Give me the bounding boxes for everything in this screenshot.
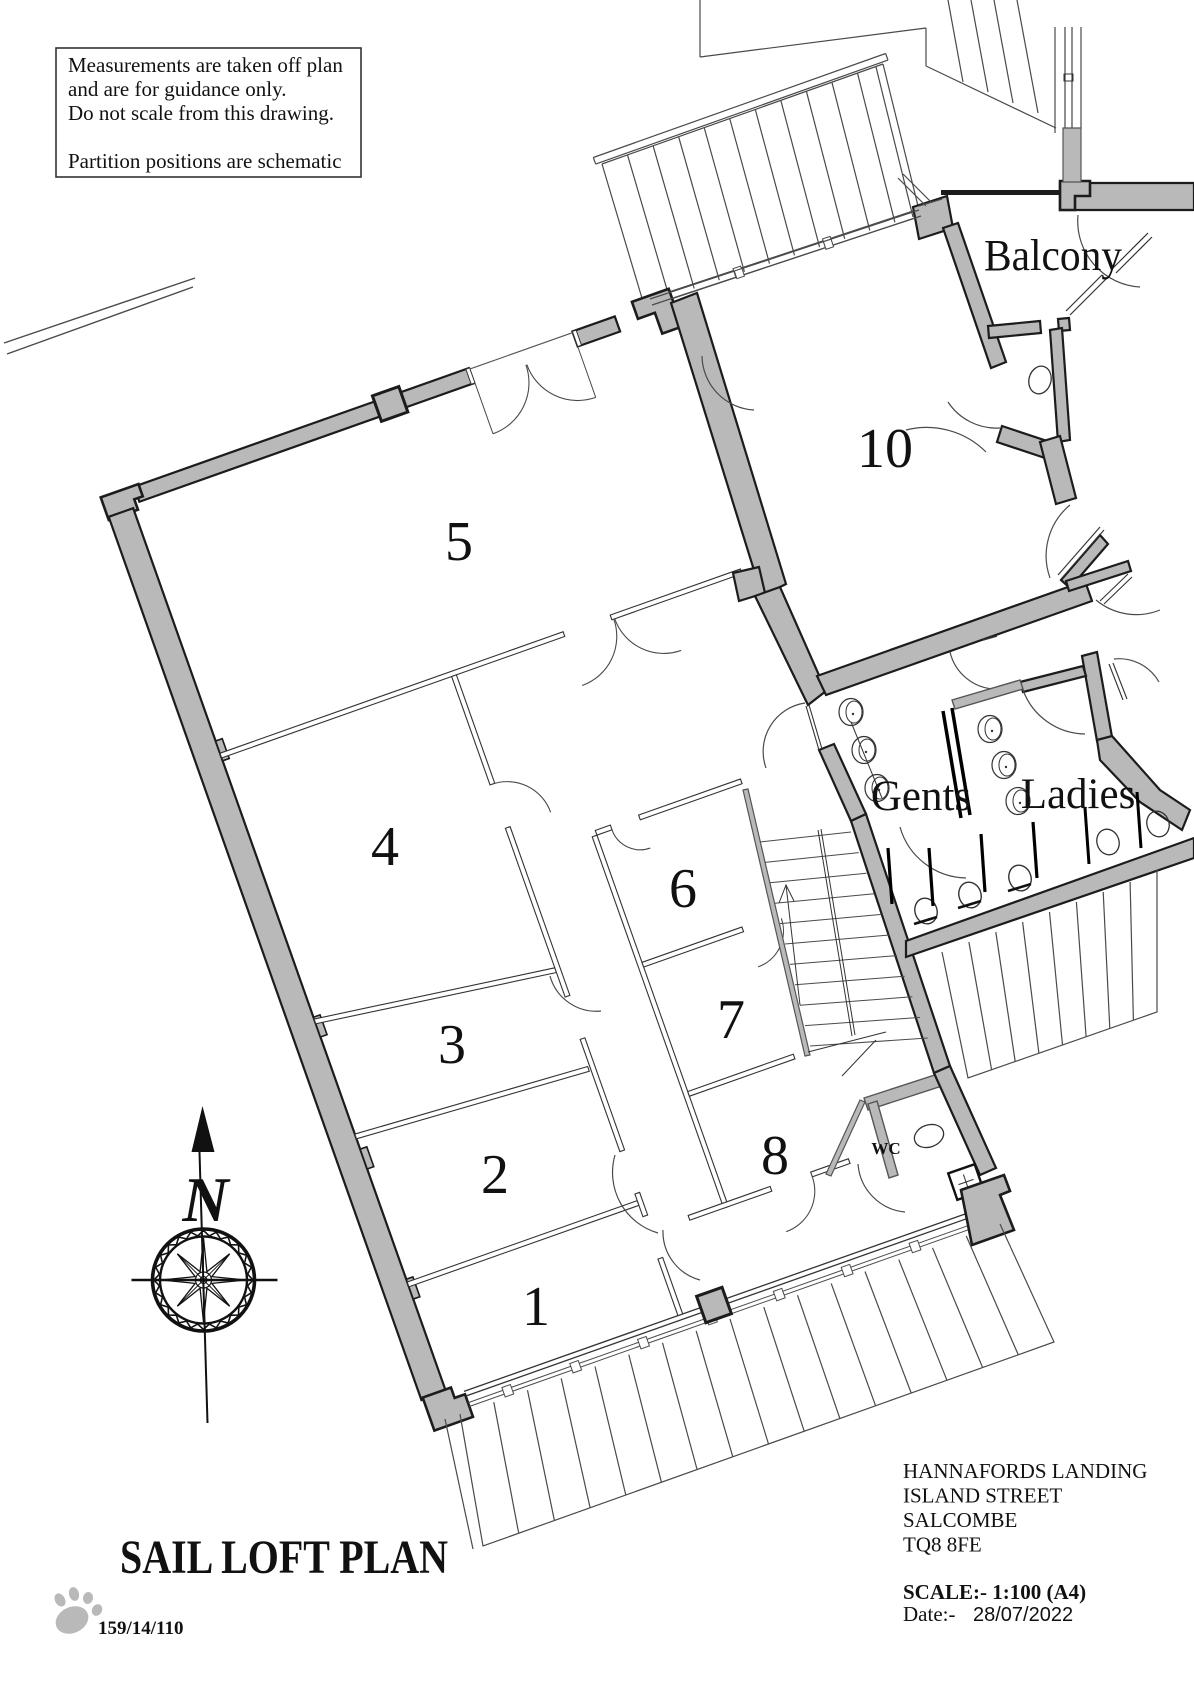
svg-text:3: 3: [438, 1014, 466, 1076]
svg-text:6: 6: [669, 858, 697, 920]
svg-text:N: N: [181, 1164, 231, 1235]
svg-text:8: 8: [761, 1125, 789, 1187]
svg-text:and are for guidance only.: and are for guidance only.: [68, 77, 286, 101]
svg-text:TQ8 8FE: TQ8 8FE: [903, 1533, 982, 1557]
svg-text:Partition positions are schema: Partition positions are schematic: [68, 149, 342, 173]
svg-text:Balcony: Balcony: [984, 231, 1122, 280]
svg-text:Gents: Gents: [871, 773, 971, 820]
svg-text:Do not scale from this drawing: Do not scale from this drawing.: [68, 101, 334, 125]
svg-text:SALCOMBE: SALCOMBE: [903, 1508, 1017, 1532]
svg-text:159/14/110: 159/14/110: [98, 1618, 184, 1639]
svg-text:SAIL LOFT PLAN: SAIL LOFT PLAN: [120, 1531, 448, 1584]
svg-text:Measurements are taken off pla: Measurements are taken off plan: [68, 53, 343, 77]
svg-text:Date:-: Date:-: [903, 1602, 955, 1626]
svg-text:28/07/2022: 28/07/2022: [973, 1604, 1073, 1626]
svg-text:7: 7: [717, 989, 745, 1051]
svg-text:Ladies: Ladies: [1021, 771, 1136, 818]
svg-text:SCALE:- 1:100 (A4): SCALE:- 1:100 (A4): [903, 1580, 1086, 1604]
svg-text:WC: WC: [871, 1139, 900, 1158]
svg-text:HANNAFORDS LANDING: HANNAFORDS LANDING: [903, 1459, 1147, 1483]
svg-text:10: 10: [857, 418, 913, 480]
svg-text:2: 2: [481, 1144, 509, 1206]
svg-text:1: 1: [522, 1276, 550, 1338]
svg-text:ISLAND STREET: ISLAND STREET: [903, 1484, 1062, 1508]
svg-text:4: 4: [371, 816, 399, 878]
svg-text:5: 5: [445, 511, 473, 573]
